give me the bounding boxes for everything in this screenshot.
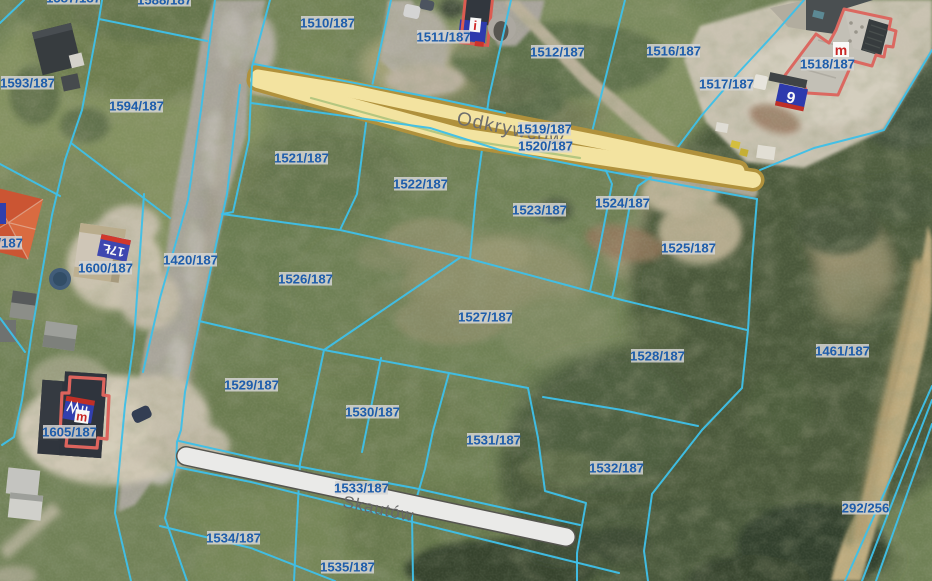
svg-text:1461/187: 1461/187	[815, 343, 870, 358]
svg-text:1521/187: 1521/187	[274, 150, 329, 165]
svg-text:1516/187: 1516/187	[646, 43, 701, 58]
svg-text:1605/187: 1605/187	[42, 424, 97, 439]
svg-text:1594/187: 1594/187	[109, 98, 164, 113]
svg-text:1535/187: 1535/187	[320, 559, 375, 574]
svg-text:1526/187: 1526/187	[278, 271, 333, 286]
svg-text:1518/187: 1518/187	[800, 56, 855, 71]
svg-text:1512/187: 1512/187	[530, 44, 585, 59]
svg-text:1520/187: 1520/187	[518, 138, 573, 153]
svg-text:1522/187: 1522/187	[393, 176, 448, 191]
svg-text:1511/187: 1511/187	[416, 29, 470, 44]
svg-text:1588/187: 1588/187	[137, 0, 192, 7]
svg-text:1420/187: 1420/187	[163, 252, 218, 267]
svg-text:1527/187: 1527/187	[458, 309, 513, 324]
svg-text:1599/187: 1599/187	[0, 235, 23, 250]
svg-text:1587/187: 1587/187	[46, 0, 101, 5]
svg-text:1523/187: 1523/187	[512, 202, 567, 217]
svg-text:1510/187: 1510/187	[300, 15, 355, 30]
svg-text:1593/187: 1593/187	[0, 75, 55, 90]
svg-text:292/256: 292/256	[842, 500, 890, 515]
svg-text:1600/187: 1600/187	[78, 260, 133, 275]
svg-text:1519/187: 1519/187	[517, 121, 572, 136]
svg-text:1533/187: 1533/187	[334, 480, 389, 495]
svg-text:1532/187: 1532/187	[589, 460, 644, 475]
svg-text:1525/187: 1525/187	[661, 240, 716, 255]
svg-text:1528/187: 1528/187	[630, 348, 685, 363]
svg-text:1534/187: 1534/187	[206, 530, 261, 545]
svg-text:1531/187: 1531/187	[466, 432, 521, 447]
svg-text:1529/187: 1529/187	[224, 377, 279, 392]
svg-text:1524/187: 1524/187	[595, 195, 650, 210]
svg-text:1517/187: 1517/187	[699, 76, 754, 91]
svg-text:1530/187: 1530/187	[345, 404, 400, 419]
